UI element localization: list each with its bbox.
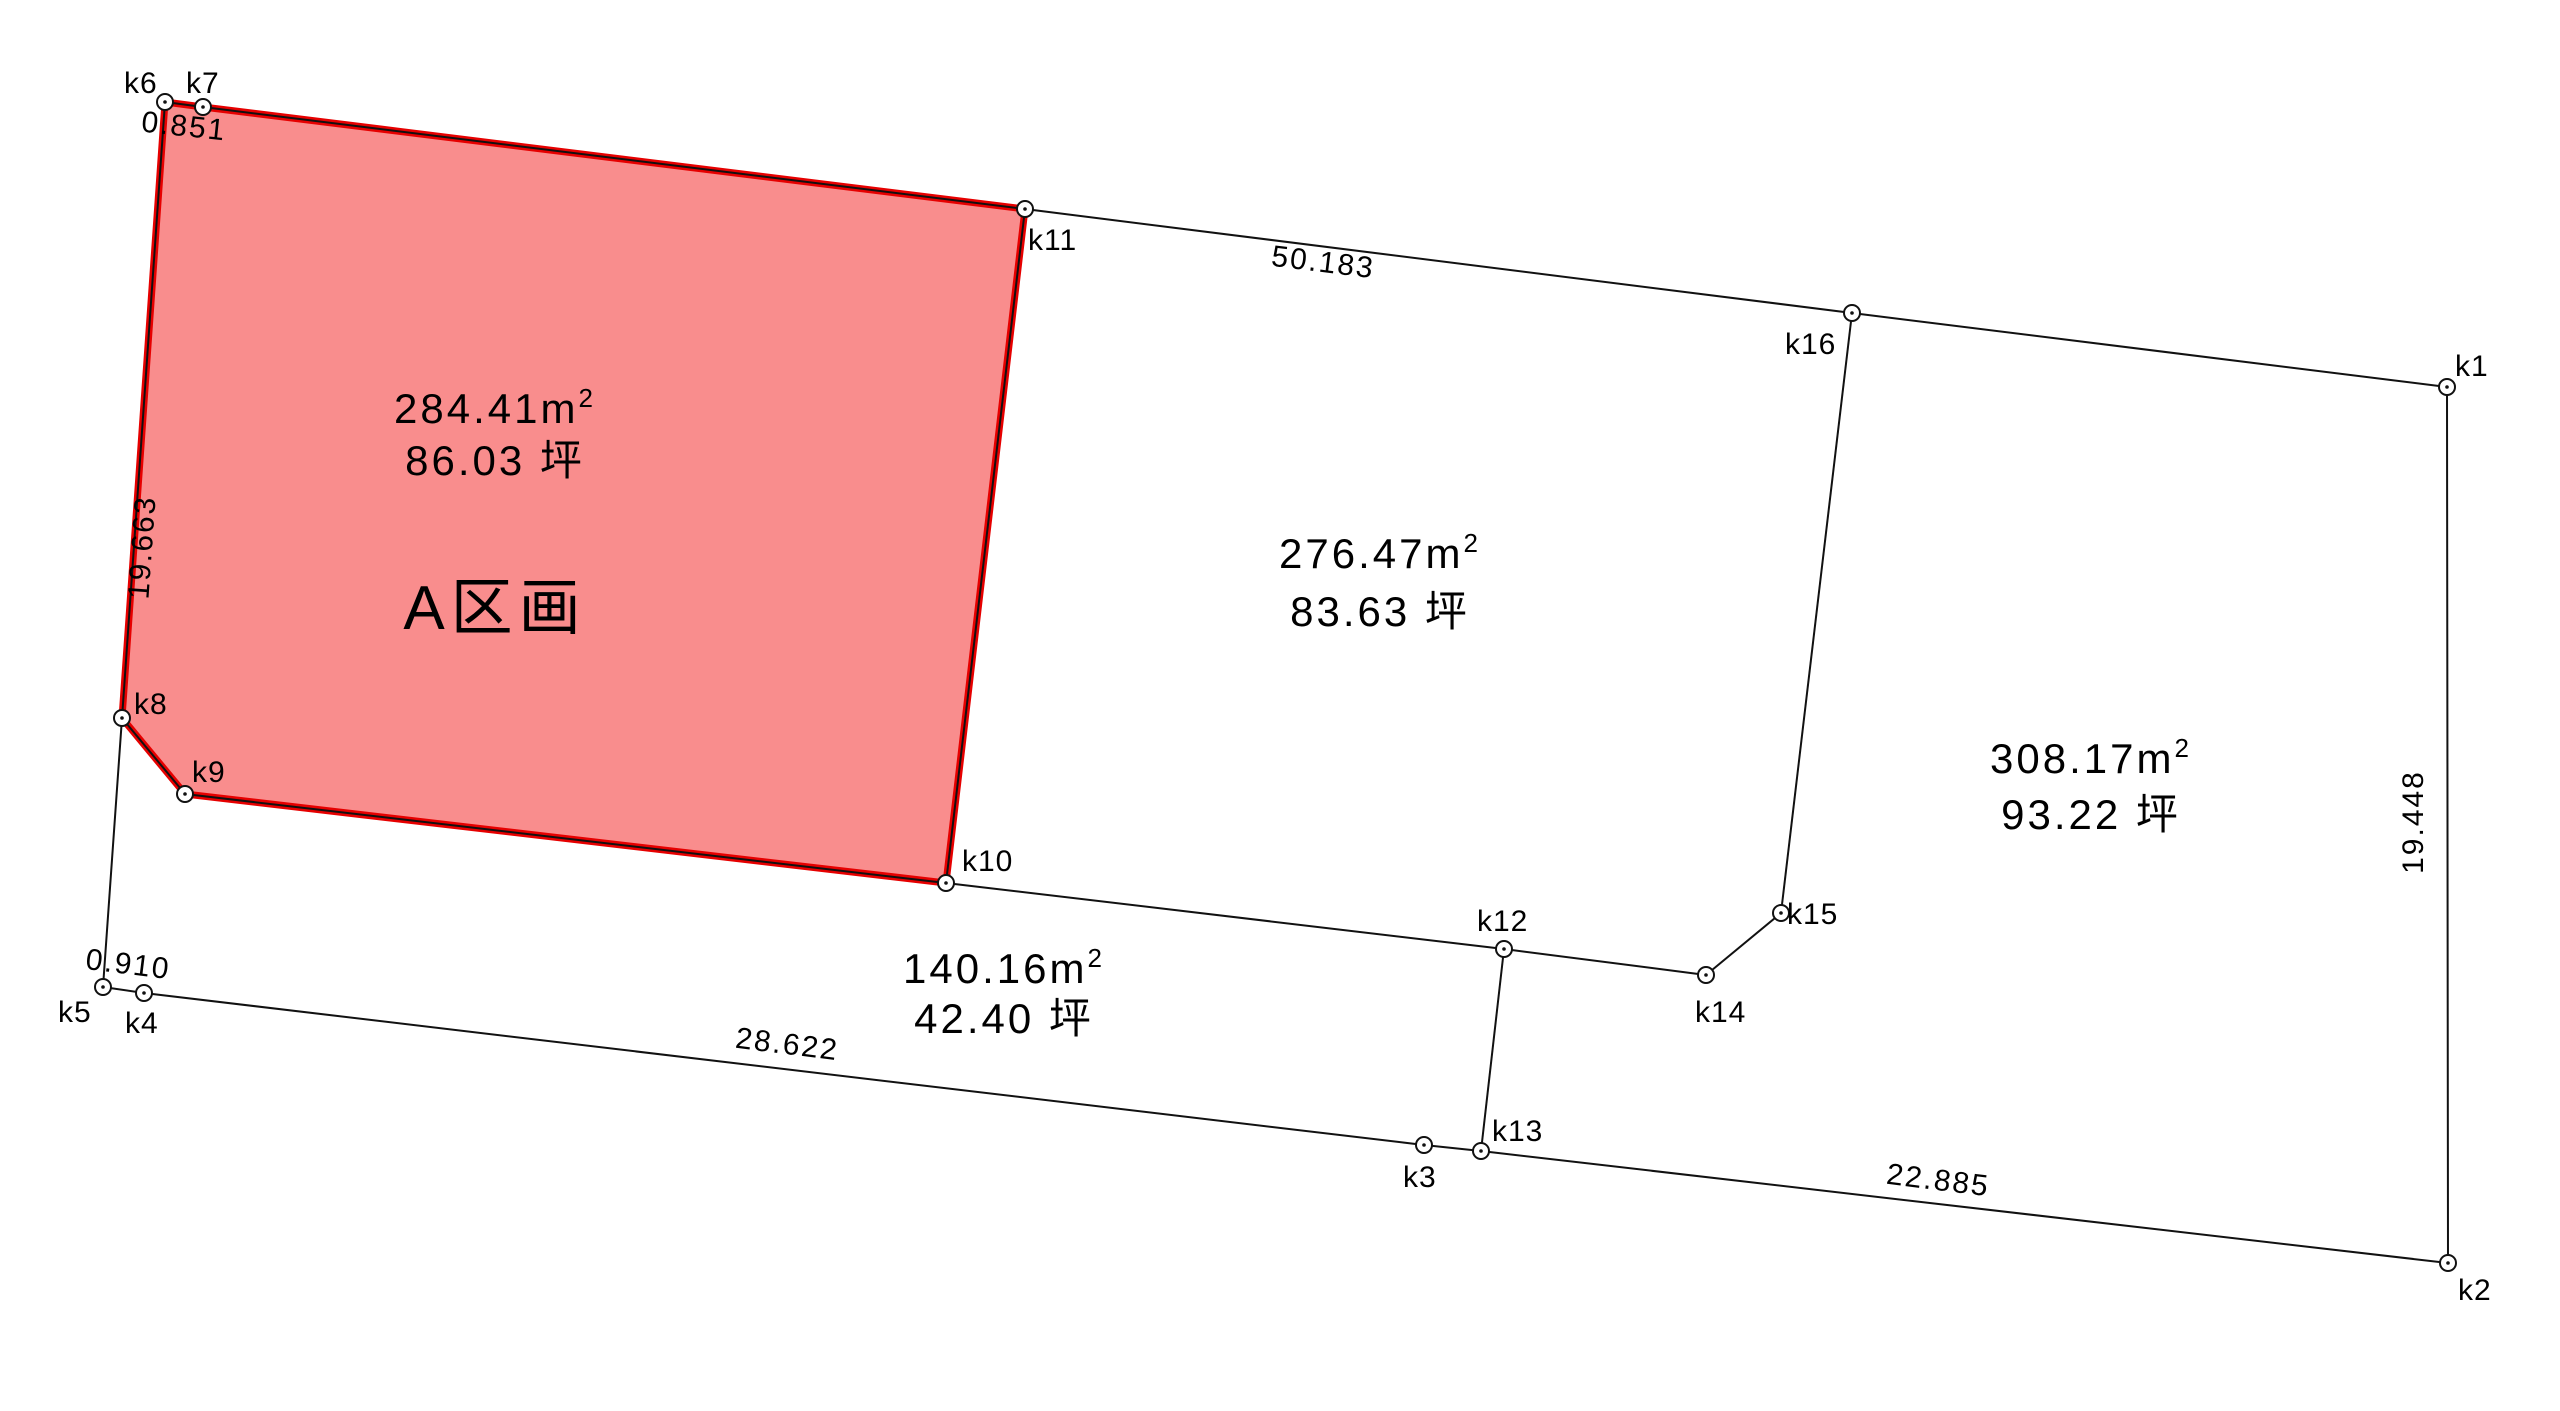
- survey-point-label-k2: k2: [2458, 1274, 2492, 1307]
- survey-point-label-k5: k5: [58, 996, 92, 1029]
- parcel-A-name: A区画: [403, 574, 586, 643]
- survey-point-dot-k1: [2445, 385, 2449, 389]
- survey-point-label-k9: k9: [192, 756, 226, 789]
- survey-point-dot-k8: [120, 716, 124, 720]
- survey-point-label-k7: k7: [186, 67, 220, 100]
- parcel-A-area-m2: 284.41m2: [394, 383, 596, 432]
- survey-point-dot-k15: [1779, 911, 1783, 915]
- division-line-k12-k14: [1504, 949, 1706, 975]
- survey-point-label-k11: k11: [1028, 224, 1077, 257]
- survey-point-label-k4: k4: [125, 1007, 159, 1040]
- parcel-C-area-m2: 308.17m2: [1990, 733, 2192, 782]
- survey-point-label-k13: k13: [1492, 1115, 1543, 1148]
- parcel-C-area-tsubo: 93.22 坪: [2001, 791, 2181, 838]
- measurement-label-0.910: 0.910: [84, 943, 172, 986]
- survey-point-label-k8: k8: [134, 688, 168, 721]
- survey-point-dot-k4: [142, 991, 146, 995]
- survey-point-dot-k2: [2446, 1261, 2450, 1265]
- survey-point-dot-k9: [183, 792, 187, 796]
- measurement-label-19.448: 19.448: [2397, 770, 2430, 874]
- survey-point-dot-k7: [201, 105, 205, 109]
- survey-point-label-k12: k12: [1477, 905, 1528, 938]
- survey-point-label-k1: k1: [2455, 350, 2489, 383]
- survey-point-dot-k16: [1850, 311, 1854, 315]
- survey-point-label-k16: k16: [1785, 328, 1836, 361]
- survey-point-dot-k5: [101, 985, 105, 989]
- measurement-label-50.183: 50.183: [1270, 240, 1377, 285]
- land-survey-diagram: 0.85119.66350.1830.91028.62222.88519.448…: [0, 0, 2560, 1411]
- survey-point-dot-k6: [163, 100, 167, 104]
- survey-point-dot-k10: [944, 881, 948, 885]
- parcel-A-area-tsubo: 86.03 坪: [405, 437, 585, 484]
- survey-point-label-k10: k10: [962, 845, 1013, 878]
- survey-point-dot-k13: [1479, 1149, 1483, 1153]
- measurement-label-22.885: 22.885: [1885, 1158, 1992, 1203]
- survey-point-label-k15: k15: [1787, 898, 1838, 931]
- parcel-B-area-m2: 276.47m2: [1279, 528, 1481, 577]
- division-line-k10-k12: [946, 883, 1504, 949]
- survey-point-dot-k14: [1704, 973, 1708, 977]
- survey-point-label-k3: k3: [1403, 1161, 1437, 1194]
- parcel-B-area-tsubo: 83.63 坪: [1290, 588, 1470, 635]
- division-line-k14-k15: [1706, 913, 1781, 975]
- survey-point-dot-k12: [1502, 947, 1506, 951]
- survey-point-label-k14: k14: [1695, 996, 1746, 1029]
- parcel-D-area-tsubo: 42.40 坪: [914, 995, 1094, 1042]
- survey-point-dot-k11: [1023, 207, 1027, 211]
- parcel-D-area-m2: 140.16m2: [903, 943, 1105, 992]
- survey-point-label-k6: k6: [124, 67, 158, 100]
- survey-point-dot-k3: [1422, 1143, 1426, 1147]
- measurement-label-28.622: 28.622: [734, 1022, 841, 1067]
- highlight-parcel-A: [122, 102, 1025, 883]
- division-line-k15-k16: [1781, 313, 1852, 913]
- parcel-map-svg: 0.85119.66350.1830.91028.62222.88519.448…: [0, 0, 2560, 1411]
